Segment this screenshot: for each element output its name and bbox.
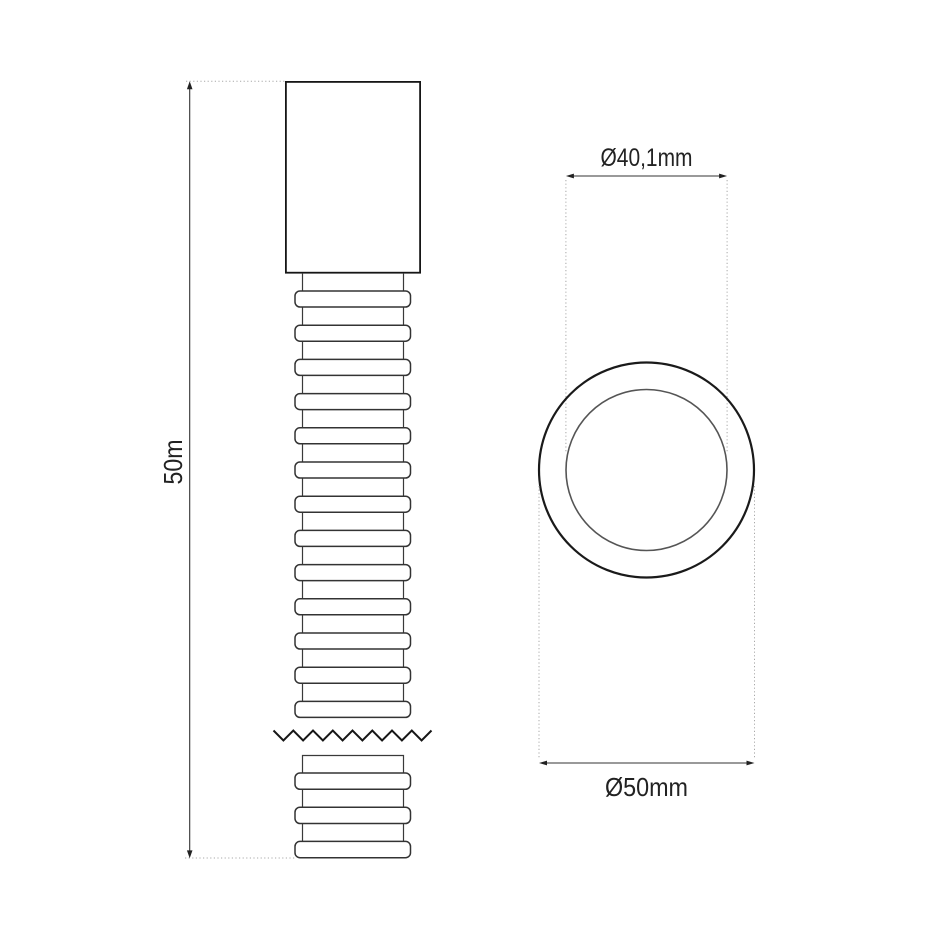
- svg-text:Ø40,1mm: Ø40,1mm: [601, 144, 693, 172]
- svg-text:Ø50mm: Ø50mm: [605, 772, 688, 802]
- svg-text:50m: 50m: [158, 440, 188, 485]
